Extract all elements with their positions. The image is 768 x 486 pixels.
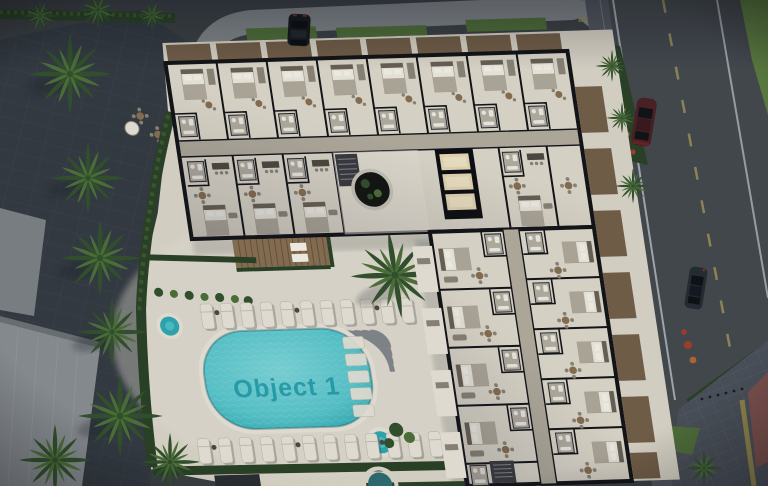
aerial-site-render: Object 1 [0,0,768,486]
vignette-overlay [0,0,768,486]
